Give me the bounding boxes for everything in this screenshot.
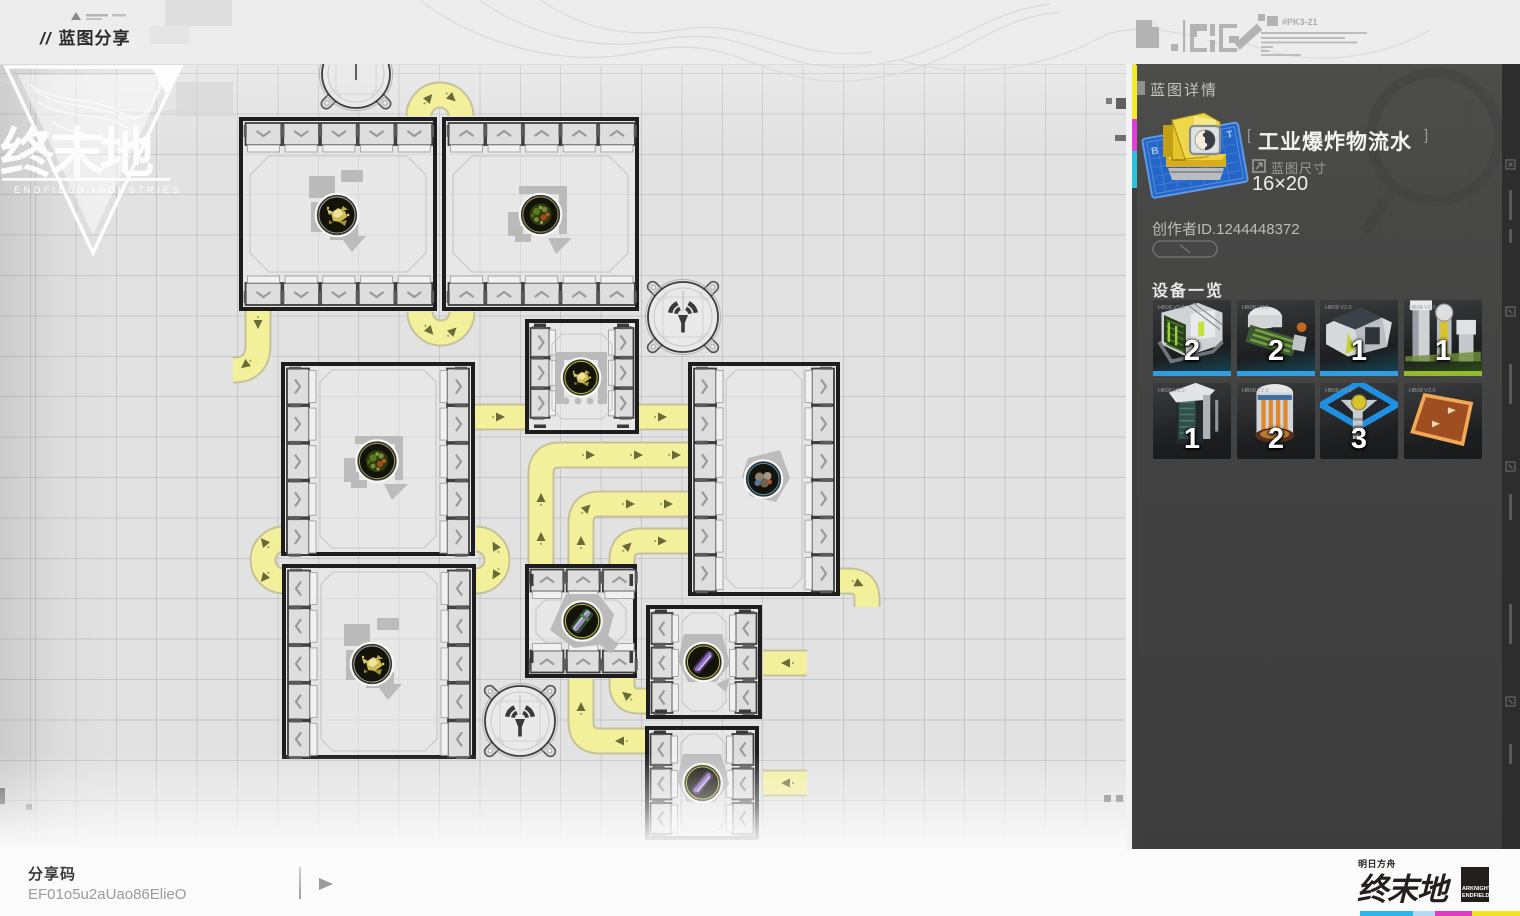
svg-text:HB08 V2.0: HB08 V2.0 [1325,388,1352,394]
svg-text:HB08 V2.0: HB08 V2.0 [1409,388,1436,394]
svg-text:HB08 V2.0: HB08 V2.0 [1325,305,1352,311]
svg-text:HB08 V2.0: HB08 V2.0 [1242,305,1269,311]
svg-text:#PK3-21: #PK3-21 [1282,17,1318,27]
svg-text:HB08 V2.0: HB08 V2.0 [1242,388,1269,394]
svg-text:HB08 V2.0: HB08 V2.0 [1409,305,1436,311]
svg-text:HB08 V2.0: HB08 V2.0 [1158,305,1185,311]
svg-text:HB08 V2.0: HB08 V2.0 [1158,388,1185,394]
